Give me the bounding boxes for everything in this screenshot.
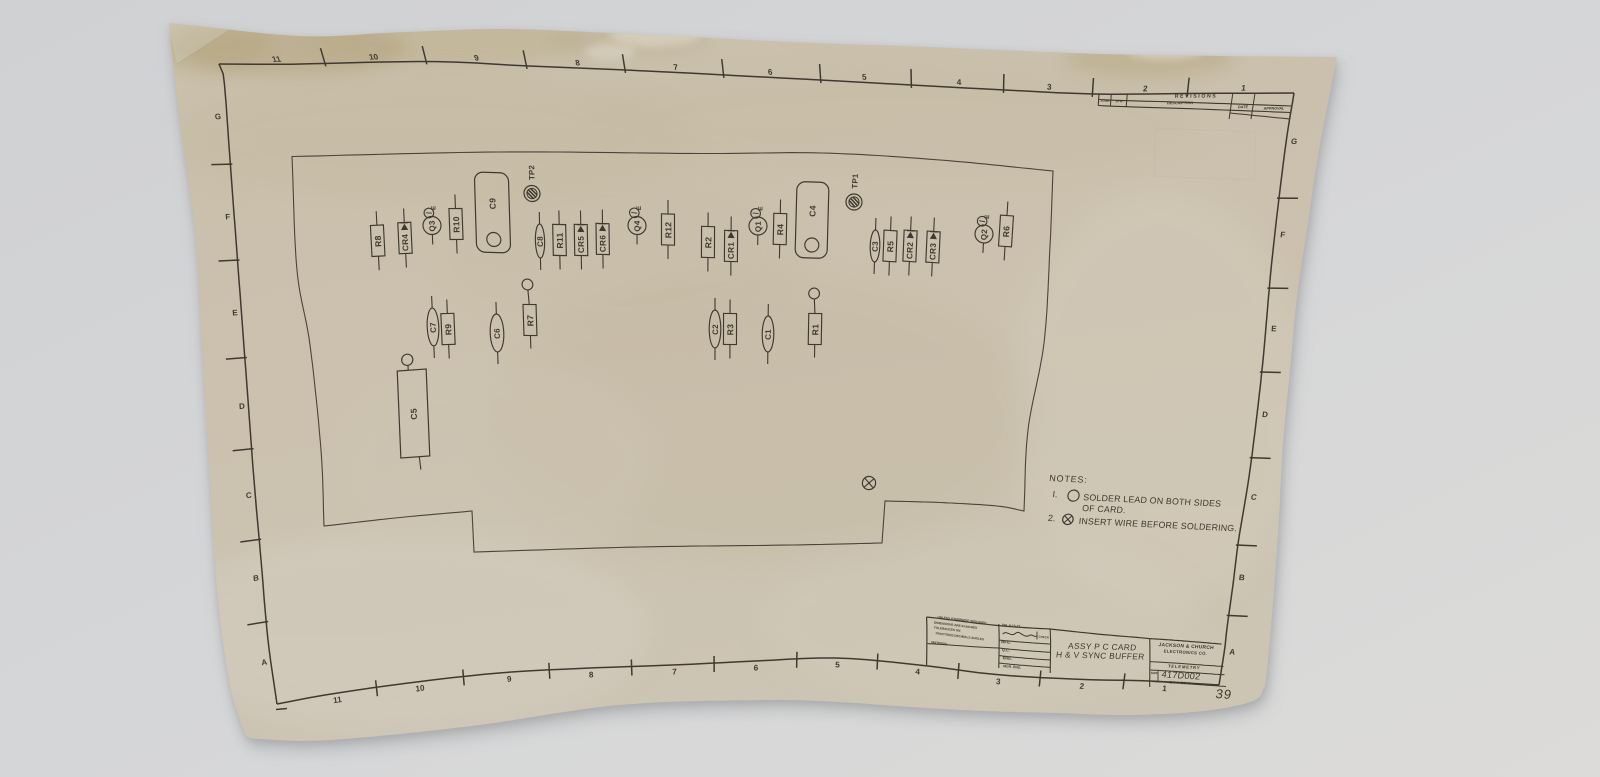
svg-text:C5: C5 bbox=[409, 408, 419, 420]
svg-text:39: 39 bbox=[1215, 686, 1234, 702]
svg-text:G: G bbox=[1290, 137, 1297, 146]
svg-text:10: 10 bbox=[415, 683, 425, 693]
svg-text:3: 3 bbox=[1047, 82, 1052, 91]
svg-text:REVISIONS: REVISIONS bbox=[1174, 94, 1217, 100]
svg-text:E: E bbox=[430, 206, 437, 210]
svg-text:CR2: CR2 bbox=[905, 241, 915, 259]
svg-text:E: E bbox=[757, 206, 764, 210]
svg-text:2.: 2. bbox=[1047, 513, 1056, 523]
svg-text:TP1: TP1 bbox=[850, 173, 860, 189]
svg-text:R11: R11 bbox=[555, 232, 565, 248]
svg-text:Q4: Q4 bbox=[633, 220, 642, 232]
svg-text:CR3: CR3 bbox=[928, 242, 938, 260]
svg-text:MFG.: MFG. bbox=[1001, 640, 1011, 645]
svg-text:R9: R9 bbox=[443, 324, 453, 336]
svg-text:R6: R6 bbox=[1001, 225, 1012, 237]
svg-text:Q1: Q1 bbox=[754, 220, 763, 232]
svg-text:Q3: Q3 bbox=[428, 220, 437, 232]
svg-text:R10: R10 bbox=[451, 216, 462, 233]
svg-text:R3: R3 bbox=[725, 324, 735, 336]
svg-text:R1: R1 bbox=[810, 324, 820, 336]
svg-text:R12: R12 bbox=[663, 222, 673, 239]
svg-text:APPROVAL: APPROVAL bbox=[1263, 107, 1285, 111]
svg-text:C3: C3 bbox=[871, 241, 880, 253]
svg-text:DESCRIPTION: DESCRIPTION bbox=[1167, 101, 1194, 105]
svg-text:CR1: CR1 bbox=[727, 242, 736, 260]
svg-text:C7: C7 bbox=[429, 322, 438, 333]
svg-text:OF CARD.: OF CARD. bbox=[1082, 503, 1127, 515]
svg-text:C2: C2 bbox=[711, 324, 720, 335]
svg-text:4: 4 bbox=[957, 78, 962, 87]
svg-text:Q2: Q2 bbox=[979, 228, 989, 240]
svg-text:E: E bbox=[984, 214, 991, 219]
svg-text:CR4: CR4 bbox=[401, 234, 411, 252]
svg-text:C4: C4 bbox=[807, 205, 817, 217]
svg-text:TP2: TP2 bbox=[527, 164, 536, 180]
svg-text:NOTES:: NOTES: bbox=[1049, 473, 1088, 485]
svg-text:7: 7 bbox=[672, 667, 677, 676]
svg-text:DATE: DATE bbox=[1238, 105, 1249, 109]
svg-text:CR6: CR6 bbox=[598, 235, 607, 253]
svg-text:11: 11 bbox=[333, 695, 343, 705]
svg-text:SIZE: SIZE bbox=[1151, 671, 1158, 675]
svg-text:CR5: CR5 bbox=[577, 236, 586, 254]
svg-text:R5: R5 bbox=[885, 240, 895, 252]
svg-text:R4: R4 bbox=[775, 224, 785, 236]
svg-text:ZONE: ZONE bbox=[1100, 99, 1109, 103]
svg-text:Q.C.: Q.C. bbox=[1002, 648, 1010, 653]
svg-text:6: 6 bbox=[754, 663, 759, 672]
svg-text:R2: R2 bbox=[703, 237, 713, 249]
svg-text:5: 5 bbox=[862, 73, 867, 82]
svg-text:C6: C6 bbox=[493, 328, 502, 339]
svg-text:ENG.: ENG. bbox=[1003, 656, 1012, 661]
svg-text:B: B bbox=[253, 573, 260, 583]
svg-text:8: 8 bbox=[589, 670, 594, 679]
svg-text:C1: C1 bbox=[764, 329, 773, 340]
svg-text:G: G bbox=[215, 112, 222, 121]
svg-text:D: D bbox=[239, 402, 246, 412]
svg-text:R8: R8 bbox=[373, 235, 384, 247]
svg-text:C9: C9 bbox=[487, 198, 497, 210]
svg-text:R7: R7 bbox=[525, 315, 535, 327]
svg-text:C: C bbox=[246, 491, 253, 501]
svg-text:C8: C8 bbox=[536, 236, 545, 247]
svg-text:F: F bbox=[225, 212, 231, 221]
svg-text:SYM: SYM bbox=[1115, 99, 1123, 103]
svg-text:5: 5 bbox=[835, 660, 840, 669]
